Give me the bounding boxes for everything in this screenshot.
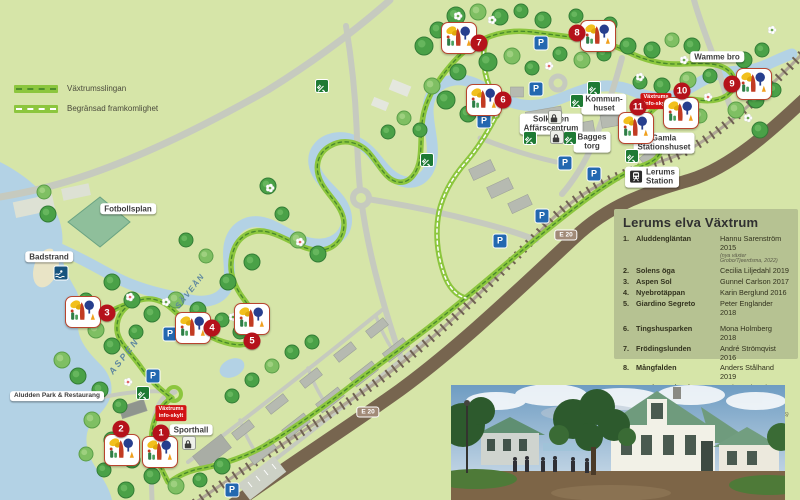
label-station-line1: Lerums	[646, 168, 675, 177]
vaxtrum-marker-box-2	[104, 434, 140, 466]
legend-item: 8.MångfaldenAnders Stålhand 2019	[623, 364, 789, 382]
restaurant-icon	[420, 153, 434, 167]
label-badstrand: Badstrand	[25, 251, 73, 262]
info-sign-line1: Växtrums	[158, 406, 183, 412]
shop-icon	[548, 110, 562, 124]
lerum-vaxtrum-map: Växtrumsslingan Begränsad framkomlighet …	[0, 0, 800, 500]
roundabout-2	[551, 76, 565, 90]
vaxtrum-marker-number-6: 6	[495, 92, 512, 109]
label-kommunhuset-line2: huset	[585, 104, 622, 113]
legend-item: 2.Solens ögaCecilia Liljedahl 2019	[623, 267, 789, 276]
train-icon	[629, 170, 643, 184]
vaxtrum-marker-number-9: 9	[724, 76, 741, 93]
label-bagges-line2: torg	[578, 142, 607, 151]
label-station-line2: Station	[646, 177, 675, 186]
label-gamla-line2: Stationshuset	[638, 143, 691, 152]
vaxtrum-marker-box-3	[65, 296, 101, 328]
parking-icon: P	[493, 234, 508, 249]
vaxtrum-marker-box-5	[234, 303, 270, 335]
flower-icon	[545, 62, 553, 70]
e20-badge-1: E 20	[554, 230, 577, 241]
shop-icon	[550, 130, 564, 144]
flower-icon	[124, 378, 132, 386]
trail-line-sample	[14, 85, 58, 93]
legend-item: 5.Giardino SegretoPeter Englander 2018	[623, 300, 789, 318]
legend-item: 4.NyebrotäppanKarin Berglund 2016	[623, 289, 789, 298]
legend-item: 6.TingshusparkenMona Holmberg 2018	[623, 325, 789, 343]
legend-item: 1.AluddengläntanHannu Sarenström 2015	[623, 235, 789, 253]
flower-icon	[744, 114, 752, 122]
vaxtrum-marker-box-10	[663, 97, 699, 129]
info-sign-south: Växtrums info-skylt	[155, 405, 186, 421]
limited-label: Begränsad framkomlighet	[67, 104, 158, 113]
flower-icon	[768, 26, 776, 34]
legend-item-note: (nya växter Grobo/Tjeerdsma, 2022)	[623, 254, 789, 266]
restaurant-icon	[523, 131, 537, 145]
parking-icon: P	[529, 82, 544, 97]
label-sporthall: Sporthall	[170, 424, 213, 435]
pond	[216, 354, 247, 381]
e20-badge-2: E 20	[356, 407, 379, 418]
vaxtrum-marker-box-8	[580, 20, 616, 52]
vaxtrum-marker-number-5: 5	[244, 333, 261, 350]
restaurant-icon	[136, 386, 150, 400]
restaurant-icon	[625, 149, 639, 163]
parking-icon: P	[558, 156, 573, 171]
parking-icon: P	[587, 167, 602, 182]
key-limited: Begränsad framkomlighet	[14, 104, 158, 113]
shop-icon	[182, 436, 196, 450]
station-photo	[451, 385, 785, 500]
label-kommunhuset: Kommun- huset	[581, 94, 626, 115]
vaxtrum-marker-number-10: 10	[674, 83, 691, 100]
legend-title: Lerums elva Växtrum	[623, 215, 789, 230]
limited-line-sample	[14, 105, 58, 113]
legend-box: Lerums elva Växtrum 1.AluddengläntanHann…	[614, 209, 798, 359]
restaurant-icon	[570, 94, 584, 108]
trail-label: Växtrumsslingan	[67, 84, 126, 93]
map-key: Växtrumsslingan Begränsad framkomlighet	[14, 84, 158, 124]
vaxtrum-marker-number-1: 1	[153, 425, 170, 442]
parking-icon: P	[146, 369, 161, 384]
label-aludden-park: Aludden Park & Restaurang	[10, 391, 104, 401]
label-lerums-station: Lerums Station	[625, 167, 679, 188]
parking-icon: P	[225, 483, 240, 498]
roundabout	[353, 190, 369, 206]
parking-icon: P	[535, 209, 550, 224]
label-fotbollsplan: Fotbollsplan	[100, 203, 156, 214]
parking-icon: P	[534, 36, 549, 51]
label-bagges-torg: Bagges torg	[574, 132, 611, 153]
label-gamla-line1: Gamla	[652, 134, 676, 143]
vaxtrum-marker-box-11	[618, 112, 654, 144]
legend-item: 7.FrödingslundenAndré Strömqvist 2016	[623, 345, 789, 363]
vaxtrum-marker-number-8: 8	[569, 25, 586, 42]
vaxtrum-marker-number-11: 11	[630, 99, 647, 116]
vaxtrum-marker-number-4: 4	[204, 320, 221, 337]
label-wamme-bro: Wamme bro	[690, 51, 744, 62]
vaxtrum-marker-box-9	[736, 68, 772, 100]
restaurant-icon	[563, 131, 577, 145]
restaurant-icon	[587, 81, 601, 95]
vaxtrum-marker-number-2: 2	[113, 421, 130, 438]
info-sign-line2: info-skylt	[158, 413, 183, 420]
label-bagges-line1: Bagges	[578, 133, 607, 142]
vaxtrum-marker-number-3: 3	[99, 305, 116, 322]
legend-item: 3.Aspen SolGunnel Carlson 2017	[623, 278, 789, 287]
key-trail: Växtrumsslingan	[14, 84, 158, 93]
restaurant-icon	[315, 79, 329, 93]
swimmer-icon	[54, 266, 69, 281]
vaxtrum-marker-number-7: 7	[471, 35, 488, 52]
